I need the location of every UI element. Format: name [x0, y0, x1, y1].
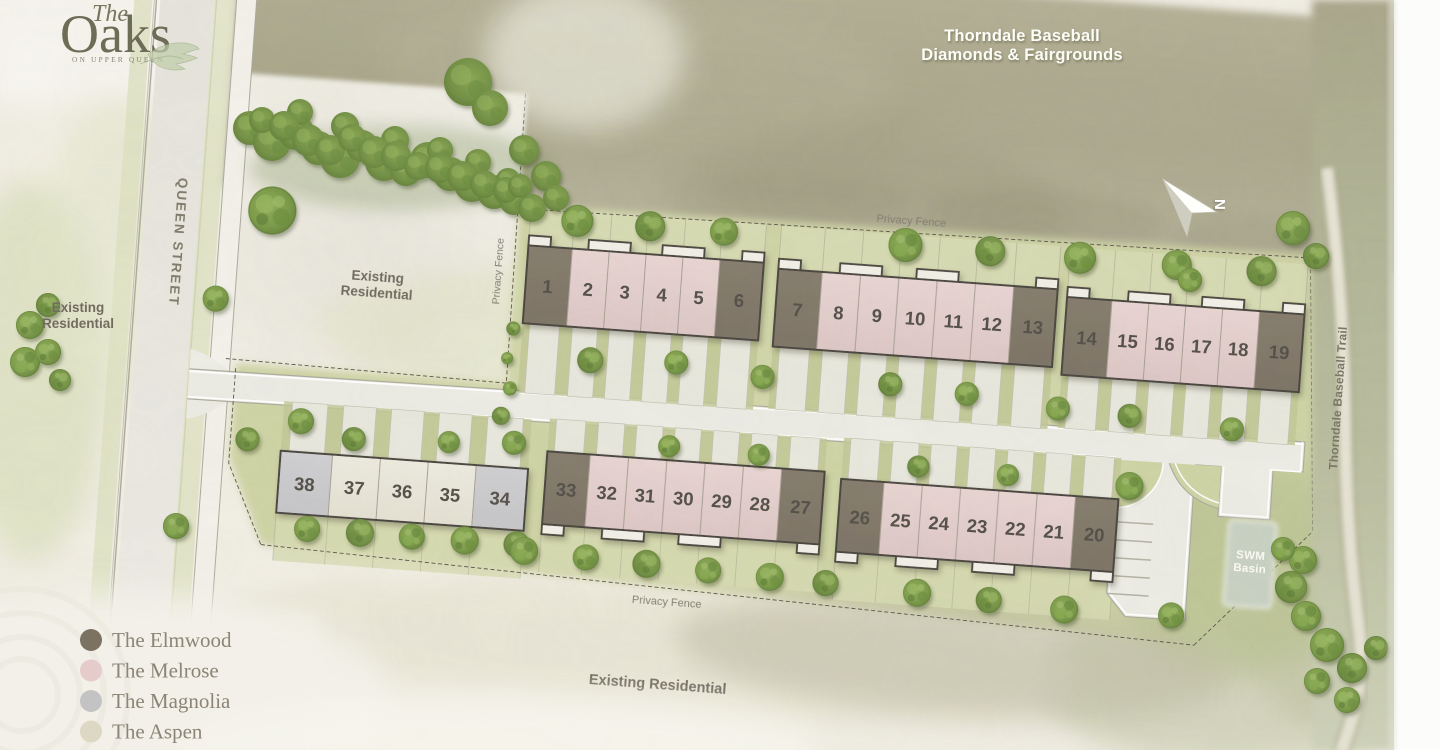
svg-text:The Melrose: The Melrose	[112, 659, 219, 683]
svg-text:The: The	[92, 1, 128, 27]
svg-text:The Aspen: The Aspen	[112, 720, 203, 744]
svg-text:Existing: Existing	[52, 300, 105, 315]
svg-text:Diamonds & Fairgrounds: Diamonds & Fairgrounds	[921, 46, 1123, 64]
svg-text:N: N	[1211, 199, 1228, 210]
svg-text:Thorndale Baseball: Thorndale Baseball	[944, 27, 1100, 45]
svg-text:Residential: Residential	[42, 316, 114, 331]
svg-text:The Elmwood: The Elmwood	[112, 628, 232, 652]
svg-text:The Magnolia: The Magnolia	[112, 689, 231, 713]
